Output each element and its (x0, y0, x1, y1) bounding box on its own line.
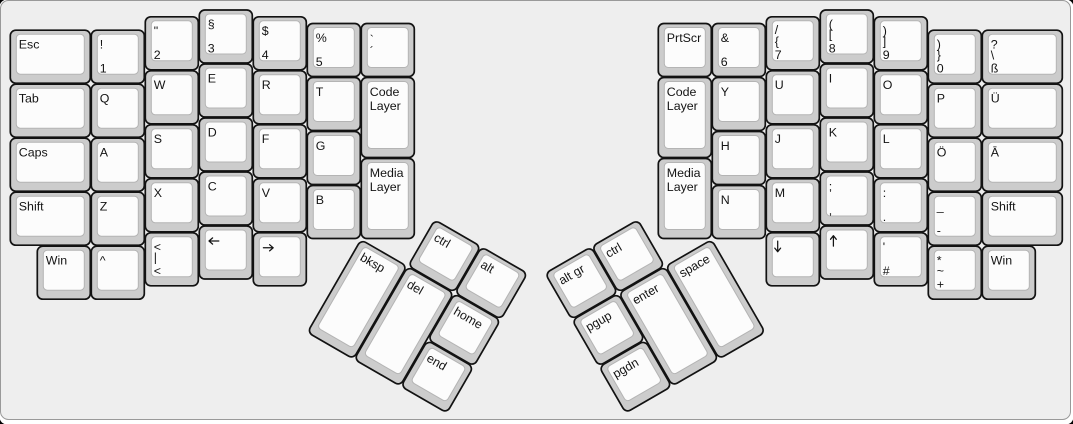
svg-text:,: , (829, 203, 832, 217)
svg-text:]: ] (883, 34, 886, 48)
svg-text:!: ! (100, 38, 103, 52)
svg-text:\: \ (991, 49, 995, 63)
svg-text:4: 4 (262, 48, 269, 62)
svg-text:;: ; (829, 179, 832, 193)
svg-text:K: K (829, 125, 838, 139)
svg-text:Y: Y (721, 85, 729, 99)
svg-text:W: W (154, 78, 166, 92)
svg-text:Win: Win (46, 254, 67, 268)
svg-text:§: § (208, 17, 215, 31)
svg-text:U: U (775, 78, 784, 92)
svg-text:9: 9 (883, 48, 890, 62)
svg-text:%: % (316, 31, 327, 45)
svg-text:Code: Code (667, 85, 697, 99)
svg-text:Shift: Shift (19, 200, 44, 214)
svg-text:Layer: Layer (370, 99, 401, 113)
svg-text:Layer: Layer (667, 99, 698, 113)
svg-text:": " (154, 24, 158, 38)
svg-text::: : (883, 186, 886, 200)
svg-text:T: T (316, 85, 324, 99)
svg-text:Q: Q (100, 92, 110, 106)
svg-text:Ü: Ü (991, 92, 1000, 106)
svg-text:[: [ (829, 28, 833, 42)
svg-text:{: { (775, 34, 779, 48)
svg-text:I: I (829, 71, 832, 85)
svg-text:Layer: Layer (667, 180, 698, 194)
svg-text:F: F (262, 132, 270, 146)
svg-text:Z: Z (100, 200, 108, 214)
svg-text:|: | (154, 250, 157, 264)
svg-text:0: 0 (937, 62, 944, 76)
svg-text:D: D (208, 125, 217, 139)
svg-text:X: X (154, 186, 162, 200)
svg-text:C: C (208, 179, 217, 193)
svg-text:Esc: Esc (19, 38, 40, 52)
svg-text:N: N (721, 193, 730, 207)
svg-text:Tab: Tab (19, 92, 39, 106)
svg-text:7: 7 (775, 48, 782, 62)
svg-text:M: M (775, 186, 785, 200)
svg-text:#: # (883, 264, 890, 278)
svg-text:E: E (208, 71, 216, 85)
svg-text:P: P (937, 92, 945, 106)
svg-text:6: 6 (721, 55, 728, 69)
svg-text:+: + (937, 278, 944, 292)
svg-text:A: A (100, 146, 109, 160)
svg-text:Media: Media (667, 166, 701, 180)
svg-text:R: R (262, 78, 271, 92)
svg-text:Shift: Shift (991, 200, 1016, 214)
svg-text:V: V (262, 186, 271, 200)
svg-text:Ö: Ö (937, 146, 947, 160)
svg-text:Media: Media (370, 166, 404, 180)
svg-text:$: $ (262, 24, 269, 38)
svg-text:_: _ (936, 200, 945, 214)
svg-text:Win: Win (991, 254, 1012, 268)
svg-text:Ā: Ā (991, 146, 1000, 160)
svg-text:}: } (937, 48, 941, 62)
svg-text:Layer: Layer (370, 180, 401, 194)
svg-text:B: B (316, 193, 324, 207)
svg-text:1: 1 (100, 62, 107, 76)
svg-text:<: < (154, 264, 161, 278)
svg-text:&: & (721, 31, 730, 45)
svg-text:5: 5 (316, 55, 323, 69)
svg-text:2: 2 (154, 48, 161, 62)
svg-text:L: L (883, 132, 890, 146)
svg-text:-: - (937, 224, 941, 238)
svg-text:O: O (883, 78, 893, 92)
svg-text:ß: ß (991, 62, 999, 76)
svg-text:H: H (721, 139, 730, 153)
svg-text:^: ^ (100, 254, 106, 268)
svg-text:Caps: Caps (19, 146, 48, 160)
svg-text:Code: Code (370, 85, 400, 99)
svg-text:J: J (775, 132, 781, 146)
svg-text:': ' (883, 240, 885, 254)
svg-text:~: ~ (937, 264, 944, 278)
svg-text:8: 8 (829, 41, 836, 55)
svg-text:PrtScr: PrtScr (667, 31, 701, 45)
svg-text:S: S (154, 132, 162, 146)
svg-text:G: G (316, 139, 326, 153)
svg-text:´: ´ (370, 44, 374, 58)
svg-text:3: 3 (208, 41, 215, 55)
svg-text:.: . (883, 210, 886, 224)
